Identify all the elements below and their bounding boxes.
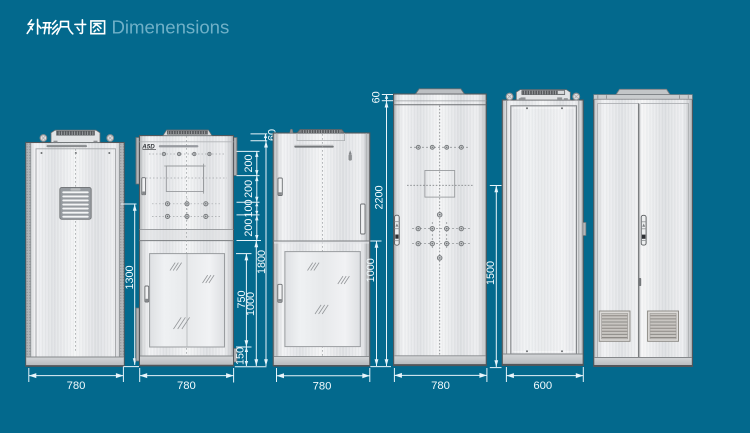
svg-text:100: 100 (243, 199, 255, 217)
svg-text:1300: 1300 (124, 265, 136, 289)
svg-text:Dimenensions: Dimenensions (112, 16, 230, 37)
svg-text:1000: 1000 (365, 258, 377, 282)
svg-text:1500: 1500 (485, 261, 497, 285)
svg-text:780: 780 (313, 380, 332, 392)
svg-text:200: 200 (243, 154, 255, 172)
svg-text:200: 200 (243, 219, 255, 237)
svg-text:60: 60 (370, 91, 382, 103)
svg-text:780: 780 (67, 380, 86, 392)
svg-text:200: 200 (243, 180, 255, 198)
svg-text:600: 600 (533, 380, 552, 392)
svg-text:780: 780 (177, 380, 196, 392)
svg-text:780: 780 (431, 380, 450, 392)
svg-text:150: 150 (234, 347, 246, 365)
svg-text:1800: 1800 (256, 250, 268, 274)
svg-text:2200: 2200 (374, 185, 386, 209)
svg-text:1000: 1000 (245, 292, 257, 316)
